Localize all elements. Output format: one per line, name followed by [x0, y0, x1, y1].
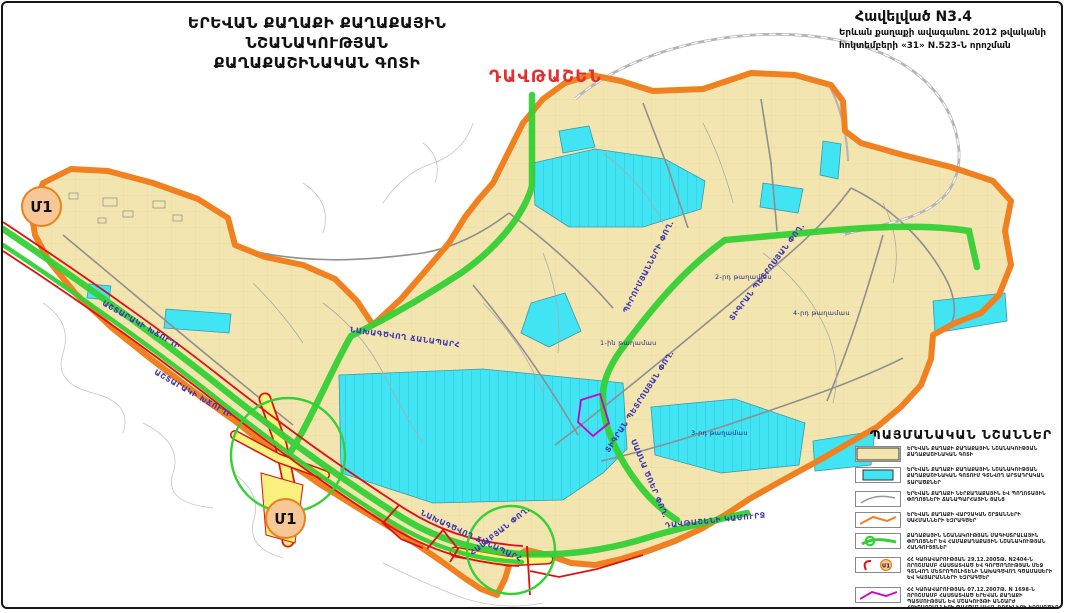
annex-decision-line1: Երևան քաղաքի ավագանու 2012 թվականի: [839, 27, 1063, 40]
legend-item-text: ԵՐԵՎԱՆ ՔԱՂԱՔԻ ՆԵՐՔԱՂԱՔԱՅԻՆ ԵՎ ՊՈՂՈՏԱՅԻՆ …: [907, 491, 1059, 504]
industrial-swatch-icon: [855, 467, 901, 483]
legend-item-metro: Մ1 ՀՀ ԿԱՌԱՎԱՐՈՒԹՅԱՆ 29.12.2005Թ. N2404-Ն…: [855, 557, 1063, 582]
metro-marker-label: Մ1: [30, 198, 52, 216]
legend-item-text: ԵՐԵՎԱՆ ՔԱՂԱՔԻ ՎԱՐՉԱԿԱՆ ՇՐՋԱՆՆԵՐԻ ՍԱՀՄԱՆՆ…: [907, 512, 1059, 525]
block-label-1: 1-ին թաղամաս: [600, 339, 657, 347]
legend-item-text: ԵՐԵՎԱՆ ՔԱՂԱՔԻ ՔԱՂԱՔԱՅԻՆ ՆՇԱՆԱԿՈՒԹՅԱՆ ՔԱՂ…: [907, 467, 1059, 486]
legend-item-text: ՀՀ ԿԱՌԱՎԱՐՈՒԹՅԱՆ 29.12.2005Թ. N2404-Ն ՈՐ…: [907, 557, 1059, 582]
annex-number: Հավելված N3.4: [855, 9, 1063, 25]
page-title: ԵՐԵՎԱՆ ՔԱՂԱՔԻ ՔԱՂԱՔԱՅԻՆ ՆՇԱՆԱԿՈՒԹՅԱՆ ՔԱՂ…: [121, 13, 513, 73]
legend-item-urban-zone: ԵՐԵՎԱՆ ՔԱՂԱՔԻ ՔԱՂԱՔԱՅԻՆ ՆՇԱՆԱԿՈՒԹՅԱՆ ՔԱՂ…: [855, 446, 1063, 462]
legend-item-heritage: ՀՀ ԿԱՌԱՎԱՐՈՒԹՅԱՆ 07.12.2007Թ. N 1698-Ն Ո…: [855, 587, 1063, 610]
metro-swatch-icon: Մ1: [855, 557, 901, 573]
legend-item-admin-boundary: ԵՐԵՎԱՆ ՔԱՂԱՔԻ ՎԱՐՉԱԿԱՆ ՇՐՋԱՆՆԵՐԻ ՍԱՀՄԱՆՆ…: [855, 512, 1063, 528]
legend-header: ՊԱՅՄԱՆԱԿԱՆ ՆՇԱՆՆԵՐ: [855, 427, 1063, 442]
annex-note: Հավելված N3.4 Երևան քաղաքի ավագանու 2012…: [839, 9, 1063, 53]
heritage-swatch-icon: [855, 587, 901, 603]
metro-swatch-label: Մ1: [882, 563, 890, 569]
legend-item-industrial: ԵՐԵՎԱՆ ՔԱՂԱՔԻ ՔԱՂԱՔԱՅԻՆ ՆՇԱՆԱԿՈՒԹՅԱՆ ՔԱՂ…: [855, 467, 1063, 486]
district-name-label: ԴԱՎԹԱՇԵՆ: [489, 67, 602, 86]
main-streets-swatch-icon: [855, 533, 901, 549]
block-label-4: 4-րդ թաղամաս: [793, 309, 850, 317]
metro-marker-m1-south: Մ1: [265, 498, 306, 539]
metro-marker-m1-west: Մ1: [21, 186, 62, 227]
block-label-2: 2-րդ թաղամաս: [715, 273, 772, 281]
admin-boundary-swatch-icon: [855, 512, 901, 528]
block-label-3: 3-րդ թաղամաս: [691, 429, 748, 437]
legend: ՊԱՅՄԱՆԱԿԱՆ ՆՇԱՆՆԵՐ ԵՐԵՎԱՆ ՔԱՂԱՔԻ ՔԱՂԱՔԱՅ…: [855, 427, 1063, 609]
annex-decision-line2: հոկտեմբերի «31» N.523-Ն որոշման: [839, 40, 1063, 53]
page-title-line1: ԵՐԵՎԱՆ ՔԱՂԱՔԻ ՔԱՂԱՔԱՅԻՆ ՆՇԱՆԱԿՈՒԹՅԱՆ: [121, 13, 513, 53]
road-network-swatch-icon: [855, 491, 901, 507]
page-title-line2: ՔԱՂԱՔԱՇԻՆԱԿԱՆ ԳՈՏԻ: [121, 53, 513, 73]
legend-item-text: ԵՐԵՎԱՆ ՔԱՂԱՔԻ ՔԱՂԱՔԱՅԻՆ ՆՇԱՆԱԿՈՒԹՅԱՆ ՔԱՂ…: [907, 446, 1059, 459]
legend-item-main-streets: ՔԱՂԱՔԱՅԻՆ ՆՇԱՆԱԿՈՒԹՅԱՆ ՄԱԳԻՍՏՐԱԼԱՅԻՆ ՓՈՂ…: [855, 533, 1063, 552]
metro-marker-label: Մ1: [274, 510, 296, 528]
legend-item-road-network: ԵՐԵՎԱՆ ՔԱՂԱՔԻ ՆԵՐՔԱՂԱՔԱՅԻՆ ԵՎ ՊՈՂՈՏԱՅԻՆ …: [855, 491, 1063, 507]
urban-zone-swatch-icon: [855, 446, 901, 462]
legend-item-text: ՔԱՂԱՔԱՅԻՆ ՆՇԱՆԱԿՈՒԹՅԱՆ ՄԱԳԻՍՏՐԱԼԱՅԻՆ ՓՈՂ…: [907, 533, 1059, 552]
map-sheet: ԵՐԵՎԱՆ ՔԱՂԱՔԻ ՔԱՂԱՔԱՅԻՆ ՆՇԱՆԱԿՈՒԹՅԱՆ ՔԱՂ…: [1, 1, 1063, 609]
legend-item-text: ՀՀ ԿԱՌԱՎԱՐՈՒԹՅԱՆ 07.12.2007Թ. N 1698-Ն Ո…: [907, 587, 1059, 610]
